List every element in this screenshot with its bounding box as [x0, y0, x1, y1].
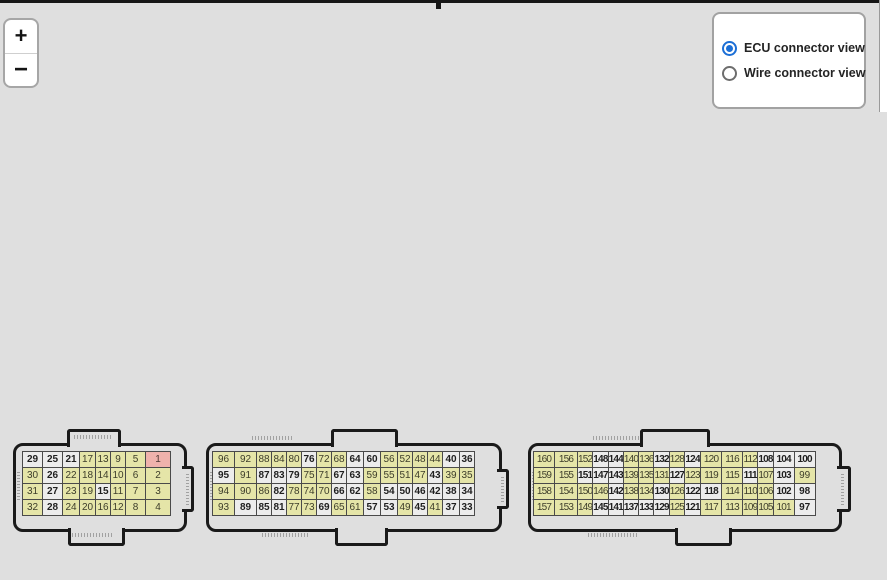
pin-cell-68[interactable]: 68	[332, 452, 347, 468]
pin-cell-157[interactable]: 157	[534, 500, 555, 516]
pin-cell-23[interactable]: 23	[63, 484, 80, 500]
connector-2-top-tab	[331, 429, 398, 447]
radio-button-icon[interactable]	[722, 66, 737, 81]
pin-cell-97[interactable]: 97	[794, 500, 815, 516]
pin-cell-82[interactable]: 82	[272, 484, 287, 500]
pin-cell-44[interactable]: 44	[428, 452, 443, 468]
connector-3-notch-marking	[841, 473, 844, 505]
pin-cell-22[interactable]: 22	[63, 468, 80, 484]
pin-cell-7[interactable]: 7	[126, 484, 146, 500]
connector-3-bottom-tab	[675, 528, 732, 546]
pin-cell-134[interactable]: 134	[639, 484, 654, 500]
pin-cell-121[interactable]: 121	[685, 500, 701, 516]
pin-cell-101[interactable]: 101	[773, 500, 794, 516]
pin-cell-58[interactable]: 58	[364, 484, 381, 500]
pin-cell-144[interactable]: 144	[608, 452, 623, 468]
pin-cell-89[interactable]: 89	[235, 500, 257, 516]
connector-3-pin-grid: 1601561521481441401361321281241201161121…	[533, 451, 816, 516]
pin-cell-34[interactable]: 34	[460, 484, 475, 500]
pin-cell-129[interactable]: 129	[654, 500, 669, 516]
pin-cell-67[interactable]: 67	[332, 468, 347, 484]
pin-cell-18[interactable]: 18	[80, 468, 96, 484]
pin-cell-47[interactable]: 47	[413, 468, 428, 484]
pin-cell-96[interactable]: 96	[213, 452, 235, 468]
pin-cell-43[interactable]: 43	[428, 468, 443, 484]
pin-cell-102[interactable]: 102	[773, 484, 794, 500]
pin-cell-149[interactable]: 149	[578, 500, 593, 516]
pin-cell-83[interactable]: 83	[272, 468, 287, 484]
radio-label: Wire connector view	[744, 66, 865, 80]
pin-cell-128[interactable]: 128	[669, 452, 684, 468]
pin-cell-155[interactable]: 155	[555, 468, 578, 484]
pin-cell-126[interactable]: 126	[669, 484, 684, 500]
pin-cell-158[interactable]: 158	[534, 484, 555, 500]
pin-cell-26[interactable]: 26	[43, 468, 63, 484]
pin-cell-114[interactable]: 114	[722, 484, 743, 500]
pin-cell-140[interactable]: 140	[623, 452, 638, 468]
pin-cell-32[interactable]: 32	[23, 500, 43, 516]
pin-cell-79[interactable]: 79	[287, 468, 302, 484]
pin-cell-59[interactable]: 59	[364, 468, 381, 484]
pin-cell-4[interactable]: 4	[146, 500, 171, 516]
pin-cell-160[interactable]: 160	[534, 452, 555, 468]
pin-cell-147[interactable]: 147	[593, 468, 608, 484]
pin-cell-56[interactable]: 56	[381, 452, 398, 468]
pin-cell-73[interactable]: 73	[302, 500, 317, 516]
radio-wire-connector-view[interactable]: Wire connector view	[722, 66, 856, 81]
top-center-tick	[436, 0, 441, 9]
pin-cell-136[interactable]: 136	[639, 452, 654, 468]
pin-cell-25[interactable]: 25	[43, 452, 63, 468]
pin-cell-115[interactable]: 115	[722, 468, 743, 484]
radio-ecu-connector-view[interactable]: ECU connector view	[722, 41, 856, 56]
right-page-margin	[879, 0, 887, 112]
pin-cell-119[interactable]: 119	[701, 468, 722, 484]
pin-cell-124[interactable]: 124	[685, 452, 701, 468]
pin-cell-118[interactable]: 118	[701, 484, 722, 500]
pin-cell-39[interactable]: 39	[443, 468, 460, 484]
pin-cell-13[interactable]: 13	[96, 452, 111, 468]
pin-cell-27[interactable]: 27	[43, 484, 63, 500]
radio-button-icon[interactable]	[722, 41, 737, 56]
pin-cell-152[interactable]: 152	[578, 452, 593, 468]
pin-cell-90[interactable]: 90	[235, 484, 257, 500]
pin-cell-76[interactable]: 76	[302, 452, 317, 468]
pin-cell-61[interactable]: 61	[347, 500, 364, 516]
pin-cell-81[interactable]: 81	[272, 500, 287, 516]
pin-cell-12[interactable]: 12	[111, 500, 126, 516]
pin-cell-9[interactable]: 9	[111, 452, 126, 468]
pin-cell-40[interactable]: 40	[443, 452, 460, 468]
connector-1-left-marking	[17, 470, 20, 500]
pin-cell-15[interactable]: 15	[96, 484, 111, 500]
pin-cell-80[interactable]: 80	[287, 452, 302, 468]
pin-cell-135[interactable]: 135	[639, 468, 654, 484]
pin-cell-150[interactable]: 150	[578, 484, 593, 500]
pin-cell-99[interactable]: 99	[794, 468, 815, 484]
connector-3-side-notch	[837, 466, 851, 512]
pin-cell-156[interactable]: 156	[555, 452, 578, 468]
pin-cell-52[interactable]: 52	[398, 452, 413, 468]
pin-cell-148[interactable]: 148	[593, 452, 608, 468]
pin-cell-75[interactable]: 75	[302, 468, 317, 484]
connector-1-notch-marking	[186, 473, 189, 505]
pin-cell-62[interactable]: 62	[347, 484, 364, 500]
pin-cell-138[interactable]: 138	[623, 484, 638, 500]
pin-cell-29[interactable]: 29	[23, 452, 43, 468]
pin-cell-146[interactable]: 146	[593, 484, 608, 500]
pin-cell-100[interactable]: 100	[794, 452, 815, 468]
pin-cell-159[interactable]: 159	[534, 468, 555, 484]
pin-cell-41[interactable]: 41	[428, 500, 443, 516]
pin-cell-111[interactable]: 111	[743, 468, 758, 484]
pin-cell-143[interactable]: 143	[608, 468, 623, 484]
pin-cell-64[interactable]: 64	[347, 452, 364, 468]
connector-1-bottom-tab	[68, 528, 125, 546]
pin-cell-141[interactable]: 141	[608, 500, 623, 516]
pin-cell-113[interactable]: 113	[722, 500, 743, 516]
pin-cell-139[interactable]: 139	[623, 468, 638, 484]
pin-cell-95[interactable]: 95	[213, 468, 235, 484]
pin-cell-123[interactable]: 123	[685, 468, 701, 484]
pin-cell-106[interactable]: 106	[758, 484, 773, 500]
pin-cell-1[interactable]: 1	[146, 452, 171, 468]
pin-cell-116[interactable]: 116	[722, 452, 743, 468]
connector-3-top-marking	[593, 436, 639, 440]
pin-cell-48[interactable]: 48	[413, 452, 428, 468]
connector-2-notch-marking	[501, 476, 504, 502]
pin-cell-10[interactable]: 10	[111, 468, 126, 484]
pin-cell-11[interactable]: 11	[111, 484, 126, 500]
pin-cell-98[interactable]: 98	[794, 484, 815, 500]
pin-cell-45[interactable]: 45	[413, 500, 428, 516]
pin-cell-16[interactable]: 16	[96, 500, 111, 516]
zoom-in-button[interactable]: +	[5, 20, 37, 53]
ecu-pinout-viewer: + − ECU connector view Wire connector vi…	[0, 0, 887, 580]
pin-cell-17[interactable]: 17	[80, 452, 96, 468]
pin-cell-37[interactable]: 37	[443, 500, 460, 516]
pin-cell-77[interactable]: 77	[287, 500, 302, 516]
pin-cell-38[interactable]: 38	[443, 484, 460, 500]
pin-cell-137[interactable]: 137	[623, 500, 638, 516]
pin-cell-78[interactable]: 78	[287, 484, 302, 500]
pin-cell-132[interactable]: 132	[654, 452, 669, 468]
pin-cell-94[interactable]: 94	[213, 484, 235, 500]
pin-cell-120[interactable]: 120	[701, 452, 722, 468]
pin-cell-108[interactable]: 108	[758, 452, 773, 468]
pin-cell-127[interactable]: 127	[669, 468, 684, 484]
pin-cell-3[interactable]: 3	[146, 484, 171, 500]
pin-cell-53[interactable]: 53	[381, 500, 398, 516]
pin-cell-60[interactable]: 60	[364, 452, 381, 468]
radio-label: ECU connector view	[744, 41, 865, 55]
pin-cell-50[interactable]: 50	[398, 484, 413, 500]
pin-cell-125[interactable]: 125	[669, 500, 684, 516]
connector-3-bottom-marking	[588, 533, 638, 537]
connector-2-top-marking	[252, 436, 294, 440]
pin-cell-24[interactable]: 24	[63, 500, 80, 516]
pin-cell-85[interactable]: 85	[257, 500, 272, 516]
zoom-control: + −	[3, 18, 39, 88]
pin-cell-74[interactable]: 74	[302, 484, 317, 500]
pin-cell-145[interactable]: 145	[593, 500, 608, 516]
pin-cell-19[interactable]: 19	[80, 484, 96, 500]
pin-cell-65[interactable]: 65	[332, 500, 347, 516]
pin-cell-14[interactable]: 14	[96, 468, 111, 484]
pin-cell-151[interactable]: 151	[578, 468, 593, 484]
pin-cell-46[interactable]: 46	[413, 484, 428, 500]
pin-cell-133[interactable]: 133	[639, 500, 654, 516]
view-toggle-panel: ECU connector view Wire connector view	[712, 12, 866, 109]
pin-cell-72[interactable]: 72	[317, 452, 332, 468]
pin-cell-20[interactable]: 20	[80, 500, 96, 516]
pin-cell-21[interactable]: 21	[63, 452, 80, 468]
pin-cell-54[interactable]: 54	[381, 484, 398, 500]
pin-cell-105[interactable]: 105	[758, 500, 773, 516]
pin-cell-122[interactable]: 122	[685, 484, 701, 500]
pin-cell-51[interactable]: 51	[398, 468, 413, 484]
pin-cell-87[interactable]: 87	[257, 468, 272, 484]
pin-cell-86[interactable]: 86	[257, 484, 272, 500]
pin-cell-66[interactable]: 66	[332, 484, 347, 500]
pin-cell-55[interactable]: 55	[381, 468, 398, 484]
pin-cell-103[interactable]: 103	[773, 468, 794, 484]
pin-cell-36[interactable]: 36	[460, 452, 475, 468]
pin-cell-2[interactable]: 2	[146, 468, 171, 484]
pin-cell-69[interactable]: 69	[317, 500, 332, 516]
pin-cell-154[interactable]: 154	[555, 484, 578, 500]
pin-cell-42[interactable]: 42	[428, 484, 443, 500]
pin-cell-109[interactable]: 109	[743, 500, 758, 516]
pin-cell-142[interactable]: 142	[608, 484, 623, 500]
pin-cell-30[interactable]: 30	[23, 468, 43, 484]
pin-cell-130[interactable]: 130	[654, 484, 669, 500]
pin-cell-93[interactable]: 93	[213, 500, 235, 516]
pin-cell-84[interactable]: 84	[272, 452, 287, 468]
pin-cell-57[interactable]: 57	[364, 500, 381, 516]
zoom-out-button[interactable]: −	[5, 53, 37, 87]
pin-cell-91[interactable]: 91	[235, 468, 257, 484]
pin-cell-107[interactable]: 107	[758, 468, 773, 484]
pin-cell-117[interactable]: 117	[701, 500, 722, 516]
connector-3-top-tab	[640, 429, 710, 447]
pin-cell-28[interactable]: 28	[43, 500, 63, 516]
connector-1-top-marking	[74, 435, 112, 439]
pin-cell-49[interactable]: 49	[398, 500, 413, 516]
pin-cell-153[interactable]: 153	[555, 500, 578, 516]
pin-cell-104[interactable]: 104	[773, 452, 794, 468]
connector-2-bottom-tab	[335, 528, 388, 546]
pin-cell-5[interactable]: 5	[126, 452, 146, 468]
pin-cell-131[interactable]: 131	[654, 468, 669, 484]
pin-cell-6[interactable]: 6	[126, 468, 146, 484]
pin-cell-63[interactable]: 63	[347, 468, 364, 484]
pin-cell-33[interactable]: 33	[460, 500, 475, 516]
pin-cell-71[interactable]: 71	[317, 468, 332, 484]
connector-2-pin-grid: 9692888480767268646056524844403695918783…	[212, 451, 475, 516]
pin-cell-112[interactable]: 112	[743, 452, 758, 468]
pin-cell-35[interactable]: 35	[460, 468, 475, 484]
pin-cell-92[interactable]: 92	[235, 452, 257, 468]
pin-cell-8[interactable]: 8	[126, 500, 146, 516]
connector-1-pin-grid: 2925211713951302622181410623127231915117…	[22, 451, 171, 516]
connector-2-bottom-marking	[262, 533, 308, 537]
connector-1-bottom-marking	[72, 533, 114, 537]
pin-cell-70[interactable]: 70	[317, 484, 332, 500]
pin-cell-31[interactable]: 31	[23, 484, 43, 500]
pin-cell-88[interactable]: 88	[257, 452, 272, 468]
pin-cell-110[interactable]: 110	[743, 484, 758, 500]
